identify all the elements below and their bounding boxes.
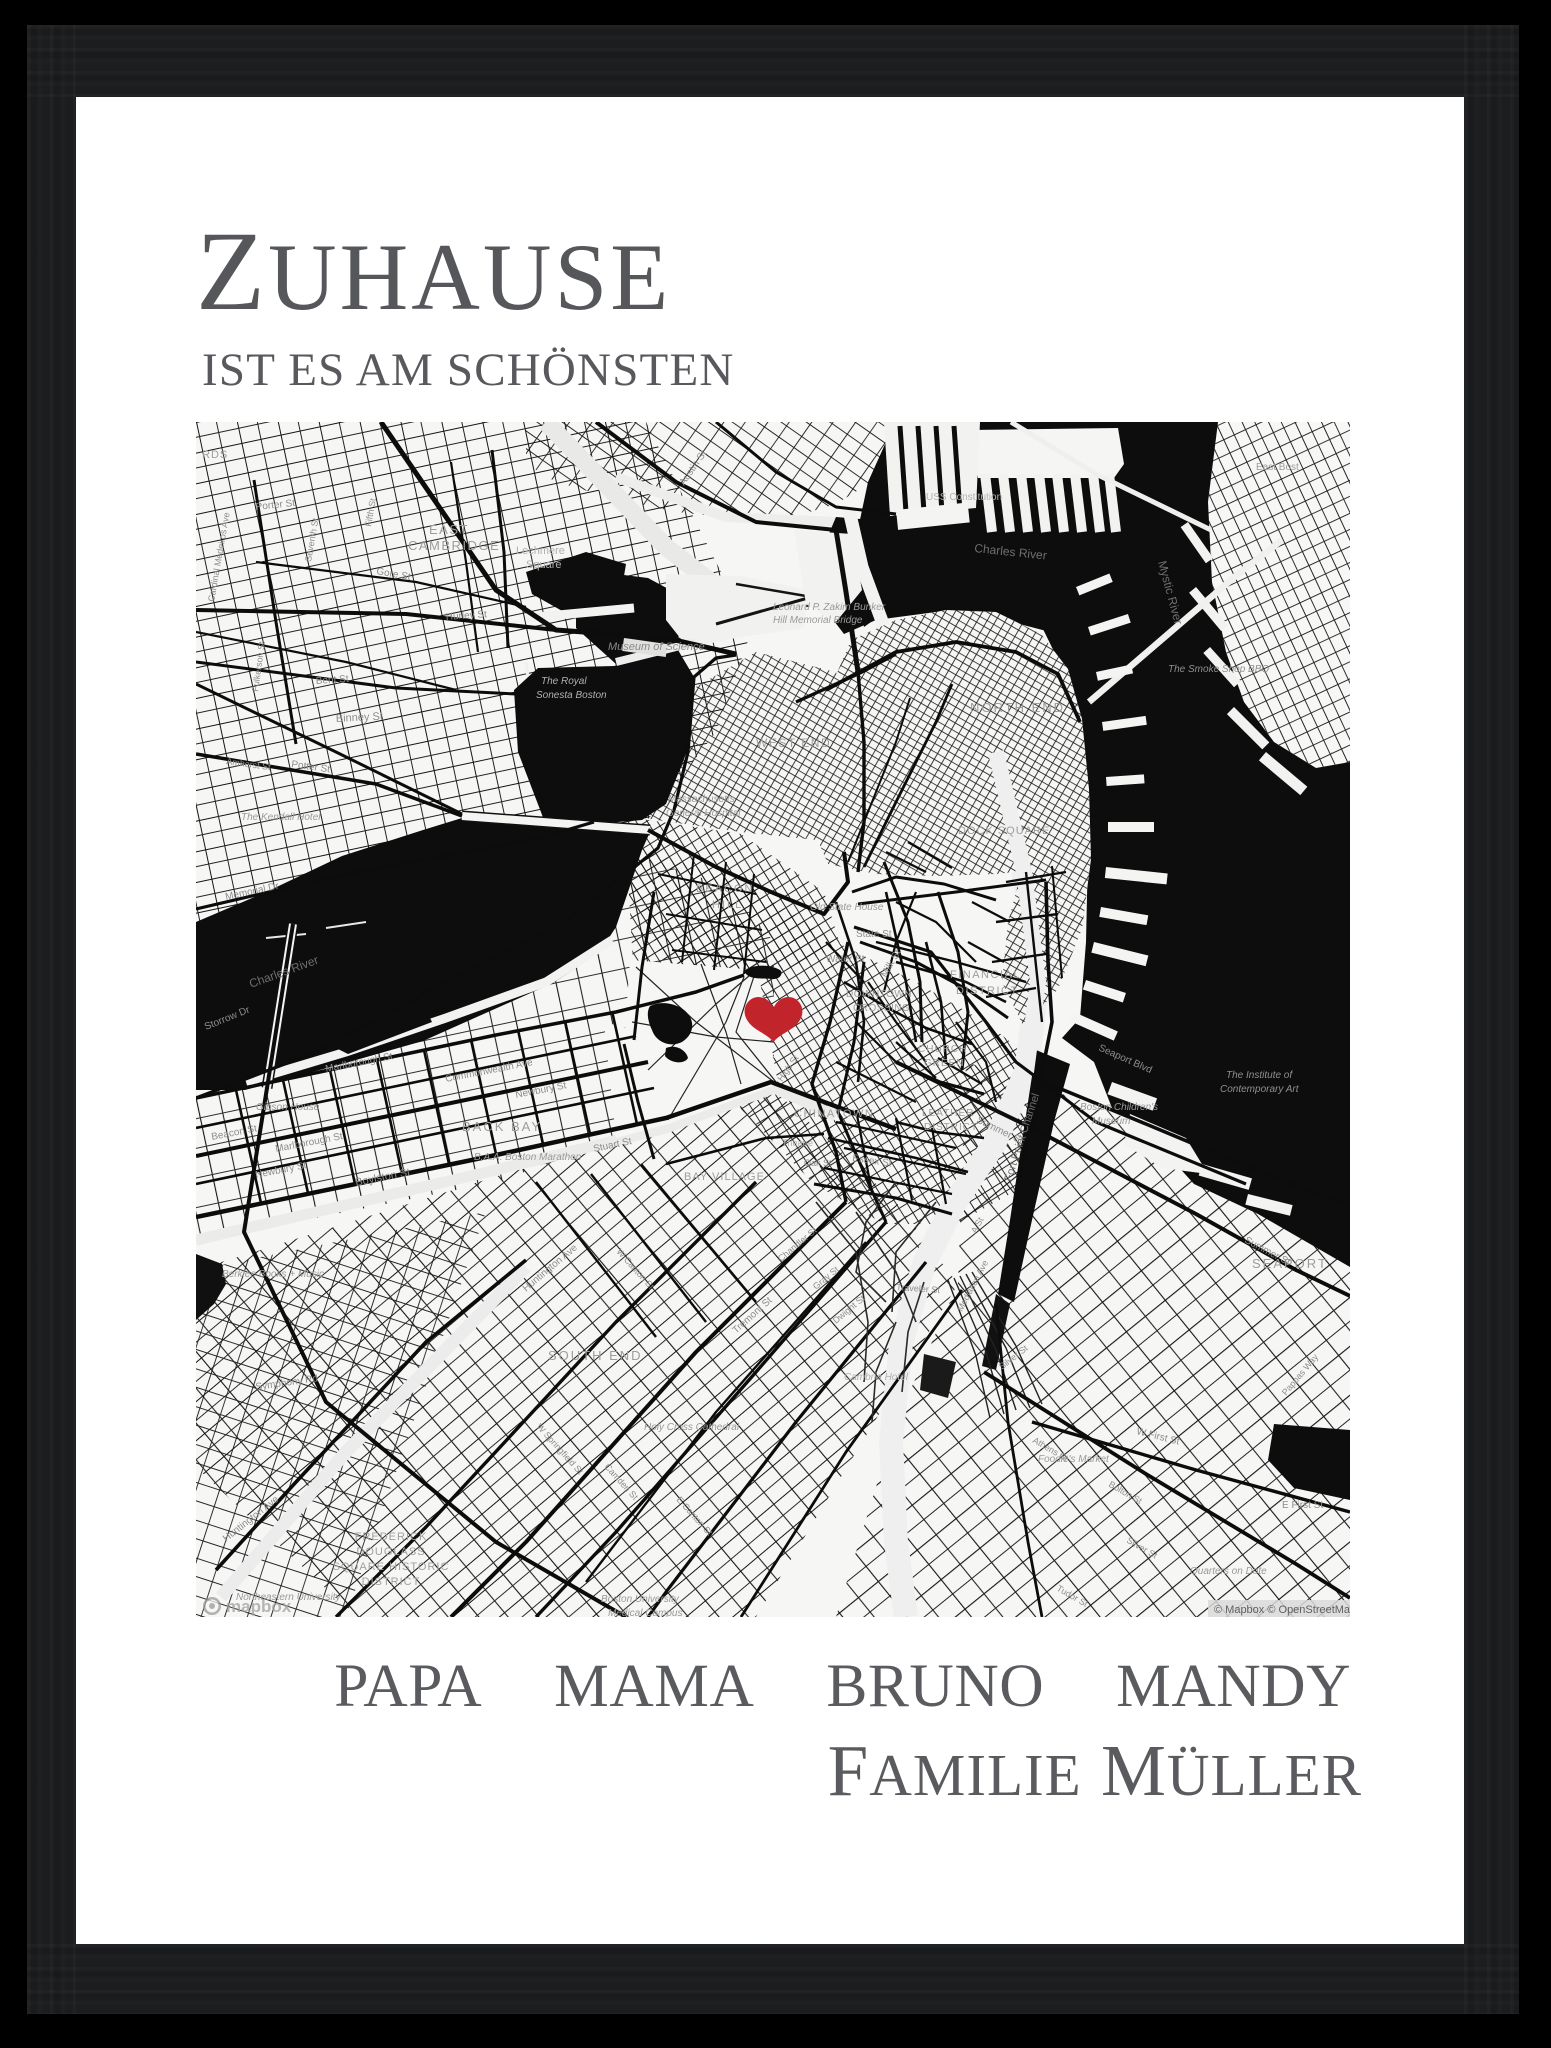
svg-text:Sonesta Boston: Sonesta Boston (536, 690, 607, 701)
svg-text:Lechmere: Lechmere (516, 545, 565, 557)
svg-text:The Institute of: The Institute of (1226, 1070, 1293, 1081)
svg-text:Oak St: Oak St (804, 1158, 832, 1168)
svg-text:CROSSING: CROSSING (853, 1003, 910, 1014)
svg-text:Massachusetts: Massachusetts (668, 794, 735, 805)
svg-text:DOUGLASS: DOUGLASS (356, 1546, 425, 1558)
svg-text:BACK BAY: BACK BAY (462, 1119, 542, 1134)
svg-text:CHINATOWN: CHINATOWN (794, 1108, 874, 1120)
svg-text:Holy Cross Cathedral: Holy Cross Cathedral (644, 1422, 740, 1433)
svg-text:Museum: Museum (1092, 1116, 1130, 1127)
svg-text:© Mapbox © OpenStreetMap: © Mapbox © OpenStreetMap (1214, 1604, 1350, 1616)
svg-text:LEATHER: LEATHER (922, 1108, 974, 1119)
svg-text:FREDERICK: FREDERICK (355, 1531, 428, 1543)
svg-text:FINANCIAL: FINANCIAL (950, 969, 1021, 981)
svg-text:The Kendall Hotel: The Kendall Hotel (241, 812, 321, 823)
svg-text:DISTRICT: DISTRICT (924, 1122, 978, 1133)
svg-text:HILL: HILL (712, 899, 743, 911)
svg-text:DOWNTOWN: DOWNTOWN (846, 989, 912, 1000)
svg-text:E First St: E First St (1282, 1500, 1323, 1511)
svg-text:mapbox: mapbox (226, 1597, 292, 1616)
svg-text:Water St: Water St (826, 954, 865, 965)
svg-text:Old State House: Old State House (810, 902, 884, 913)
svg-text:CAMBRIDGE: CAMBRIDGE (408, 538, 500, 553)
svg-text:Hill Memorial Bridge: Hill Memorial Bridge (773, 615, 863, 626)
svg-text:USS Constitution: USS Constitution (926, 492, 1002, 503)
svg-text:Medical Campus: Medical Campus (608, 1608, 682, 1617)
svg-text:GREEN: GREEN (924, 1058, 965, 1069)
svg-text:BAY VILLAGE: BAY VILLAGE (684, 1171, 765, 1183)
svg-text:CHURCH: CHURCH (918, 1044, 967, 1055)
svg-text:The Smoke Shop BBQ: The Smoke Shop BBQ (1168, 664, 1269, 675)
svg-text:Cambria Hotel: Cambria Hotel (844, 1372, 909, 1383)
svg-text:DISTRICT: DISTRICT (956, 985, 1019, 997)
svg-text:SQUARE HISTORIC: SQUARE HISTORIC (333, 1561, 450, 1573)
svg-text:The Royal: The Royal (541, 676, 587, 687)
svg-text:B.A.A. Boston Marathon: B.A.A. Boston Marathon (474, 1152, 582, 1163)
svg-text:DISTRICT: DISTRICT (362, 1576, 421, 1588)
svg-text:WEST END: WEST END (756, 736, 831, 750)
svg-text:Museum of Science: Museum of Science (608, 641, 705, 653)
svg-text:Theatre: Theatre (782, 1138, 813, 1148)
svg-text:Gibson House: Gibson House (256, 1102, 320, 1113)
svg-text:Leonard P. Zakim Bunker: Leonard P. Zakim Bunker (773, 602, 886, 613)
svg-text:Boston Children's: Boston Children's (1080, 1102, 1158, 1113)
svg-text:East Bost: East Bost (1256, 462, 1299, 473)
svg-text:General Hospital: General Hospital (666, 808, 741, 819)
svg-text:EAST: EAST (429, 522, 469, 537)
svg-text:DOCK SQUARE: DOCK SQUARE (958, 825, 1050, 837)
svg-text:Quarters on Dote: Quarters on Dote (1190, 1566, 1267, 1577)
svg-text:RDS: RDS (202, 449, 228, 461)
svg-text:Berklee Books + Music: Berklee Books + Music (222, 1269, 324, 1280)
svg-text:SOUTH END: SOUTH END (548, 1348, 643, 1363)
svg-text:State St: State St (856, 929, 892, 940)
svg-text:Foodie's Market: Foodie's Market (1038, 1454, 1110, 1465)
svg-text:Bent St: Bent St (315, 674, 349, 687)
svg-text:NORTH END: NORTH END (970, 700, 1065, 715)
svg-text:Square: Square (526, 559, 561, 571)
svg-text:BEACON: BEACON (696, 883, 754, 895)
svg-text:Boston University: Boston University (601, 1594, 680, 1605)
svg-text:Binney St: Binney St (336, 711, 384, 725)
svg-text:Contemporary Art: Contemporary Art (1220, 1084, 1300, 1095)
